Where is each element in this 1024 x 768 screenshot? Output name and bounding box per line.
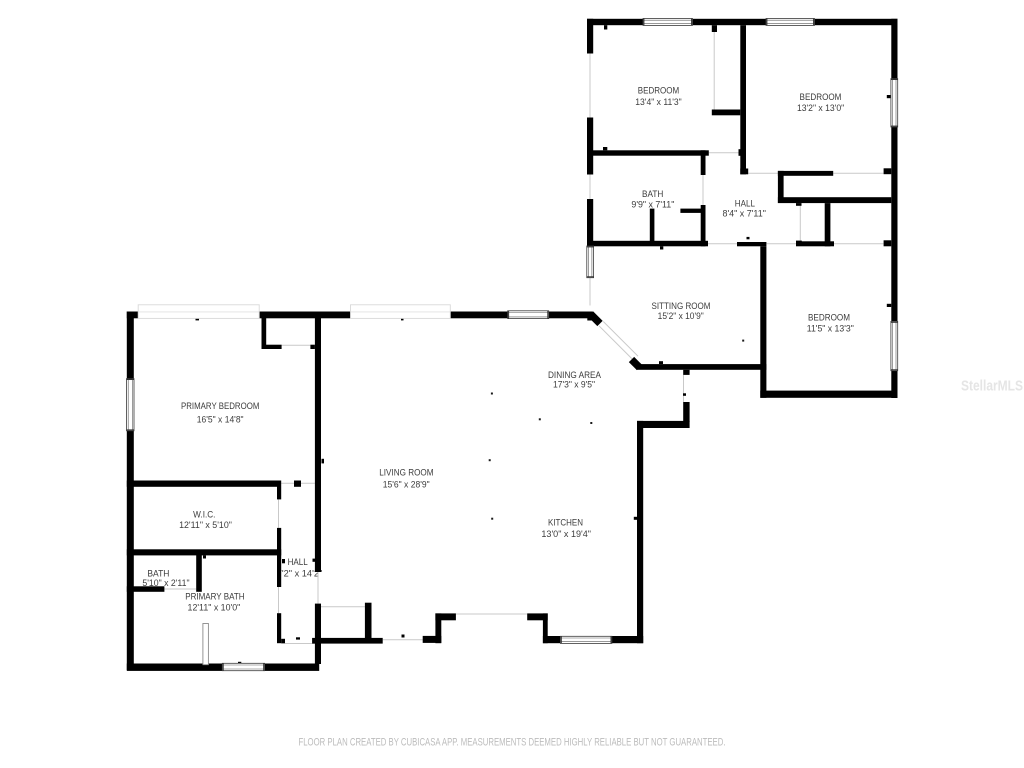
svg-text:PRIMARY BEDROOM: PRIMARY BEDROOM: [181, 401, 259, 411]
svg-text:13'4" x 11'3": 13'4" x 11'3": [635, 97, 682, 107]
svg-text:BEDROOM: BEDROOM: [808, 312, 850, 322]
svg-text:StellarMLS: StellarMLS: [961, 378, 1023, 395]
svg-text:FLOOR PLAN CREATED BY CUBICASA: FLOOR PLAN CREATED BY CUBICASA APP. MEAS…: [299, 737, 726, 749]
svg-text:12'11" x 10'0": 12'11" x 10'0": [188, 602, 241, 612]
svg-text:12'11" x 5'10": 12'11" x 5'10": [179, 520, 232, 530]
svg-text:13'2" x 13'0": 13'2" x 13'0": [797, 103, 844, 113]
svg-text:SITTING ROOM: SITTING ROOM: [652, 301, 711, 311]
svg-text:8'4" x 7'11": 8'4" x 7'11": [723, 209, 766, 219]
svg-text:15'6" x 28'9": 15'6" x 28'9": [383, 479, 430, 489]
svg-text:BEDROOM: BEDROOM: [800, 92, 842, 102]
svg-text:BATH: BATH: [147, 568, 169, 578]
svg-text:PRIMARY BATH: PRIMARY BATH: [185, 591, 244, 601]
svg-text:13'0" x 19'4": 13'0" x 19'4": [541, 529, 591, 539]
svg-text:HALL: HALL: [288, 557, 308, 567]
svg-text:BATH: BATH: [642, 189, 663, 199]
svg-text:16'5" x 14'8": 16'5" x 14'8": [197, 415, 244, 425]
svg-text:15'2" x 10'9": 15'2" x 10'9": [658, 311, 704, 321]
svg-text:LIVING ROOM: LIVING ROOM: [379, 468, 433, 478]
svg-text:17'3" x 9'5": 17'3" x 9'5": [553, 380, 595, 390]
svg-text:BEDROOM: BEDROOM: [638, 86, 680, 96]
svg-text:HALL: HALL: [735, 199, 755, 209]
svg-text:9'9" x 7'11": 9'9" x 7'11": [631, 199, 674, 209]
svg-text:DINING AREA: DINING AREA: [548, 370, 602, 380]
svg-text:W.I.C.: W.I.C.: [193, 509, 215, 519]
svg-text:KITCHEN: KITCHEN: [548, 517, 583, 527]
svg-text:11'5" x 13'3": 11'5" x 13'3": [807, 323, 854, 333]
